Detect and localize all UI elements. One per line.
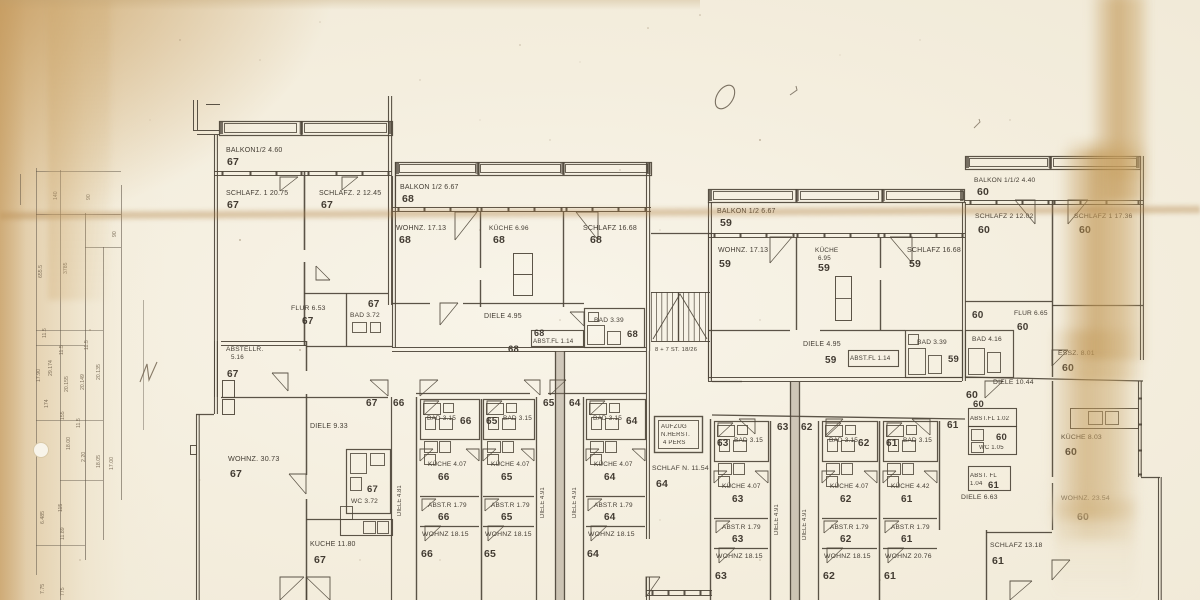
svg-text:59: 59 [948, 354, 959, 365]
svg-text:ABST.R 1.79: ABST.R 1.79 [722, 524, 761, 531]
svg-text:63: 63 [715, 570, 727, 582]
svg-text:68: 68 [590, 234, 602, 246]
svg-text:61: 61 [901, 494, 913, 505]
svg-text:20.149: 20.149 [80, 374, 86, 390]
svg-text:655.5: 655.5 [38, 265, 44, 278]
svg-text:775: 775 [60, 587, 66, 596]
svg-text:ABST. FL: ABST. FL [970, 473, 997, 479]
svg-text:62: 62 [823, 570, 835, 582]
svg-text:WC 1.05: WC 1.05 [979, 445, 1004, 451]
svg-text:N.HERST.: N.HERST. [661, 432, 690, 438]
svg-text:59: 59 [825, 355, 837, 366]
svg-text:63: 63 [777, 422, 789, 433]
svg-text:68: 68 [534, 328, 544, 338]
svg-text:60: 60 [978, 224, 990, 236]
svg-text:17.90: 17.90 [36, 369, 42, 382]
svg-text:68: 68 [508, 344, 519, 355]
svg-text:DIELE 4.81: DIELE 4.81 [397, 485, 403, 516]
svg-text:DIELE 4.91: DIELE 4.91 [572, 487, 578, 518]
svg-text:BALKON1/2 4.60: BALKON1/2 4.60 [226, 147, 283, 154]
svg-text:67: 67 [227, 199, 239, 211]
svg-text:18.00: 18.00 [66, 437, 72, 450]
svg-text:BAD 3.15: BAD 3.15 [903, 437, 932, 444]
svg-text:ABST.FL 1.14: ABST.FL 1.14 [533, 338, 574, 345]
svg-text:BALKON 1/2 6.67: BALKON 1/2 6.67 [400, 184, 459, 191]
svg-text:WOHNZ. 23.54: WOHNZ. 23.54 [1061, 495, 1110, 502]
svg-text:59: 59 [909, 258, 921, 270]
svg-text:ABST.R 1.79: ABST.R 1.79 [891, 524, 930, 531]
svg-text:7.75: 7.75 [40, 584, 46, 594]
svg-text:68: 68 [493, 234, 505, 246]
svg-text:66: 66 [421, 548, 433, 560]
svg-text:KÜCHE 4.07: KÜCHE 4.07 [428, 460, 467, 468]
svg-text:62: 62 [801, 422, 813, 433]
svg-text:60: 60 [1017, 322, 1029, 333]
svg-text:11.5: 11.5 [59, 345, 65, 355]
svg-text:67: 67 [321, 199, 333, 211]
svg-text:60: 60 [996, 432, 1007, 443]
svg-text:BAD 3.15: BAD 3.15 [734, 437, 763, 444]
svg-text:65: 65 [543, 398, 555, 409]
svg-text:61: 61 [884, 570, 896, 582]
svg-text:KÜCHE 11.80: KÜCHE 11.80 [310, 540, 356, 548]
svg-text:60: 60 [1077, 511, 1089, 523]
svg-text:BALKON 1/2 6.67: BALKON 1/2 6.67 [717, 208, 776, 215]
svg-text:ABST.FL 1.14: ABST.FL 1.14 [850, 355, 891, 362]
svg-text:174: 174 [44, 399, 50, 408]
svg-text:20.135: 20.135 [96, 364, 102, 380]
svg-text:BAD 3.15: BAD 3.15 [829, 437, 858, 444]
svg-text:KÜCHE 4.07: KÜCHE 4.07 [830, 482, 869, 490]
svg-text:ABST.R 1.79: ABST.R 1.79 [830, 524, 869, 531]
svg-text:67: 67 [314, 554, 326, 566]
svg-text:62: 62 [840, 494, 852, 505]
svg-text:BAD 3.15: BAD 3.15 [503, 415, 532, 422]
svg-text:90: 90 [86, 194, 92, 200]
svg-text:DIELE 4.95: DIELE 4.95 [484, 313, 522, 320]
svg-text:SCHLAFZ. 1 20.75: SCHLAFZ. 1 20.75 [226, 190, 288, 197]
svg-text:6.485: 6.485 [40, 511, 46, 524]
svg-text:SCHLAFZ 1 17.36: SCHLAFZ 1 17.36 [1074, 213, 1133, 220]
svg-text:140: 140 [53, 191, 59, 200]
svg-text:BAD 3.15: BAD 3.15 [427, 415, 456, 422]
svg-text:68: 68 [399, 234, 411, 246]
svg-text:20.155: 20.155 [64, 376, 70, 392]
svg-text:KÜCHE 4.07: KÜCHE 4.07 [722, 482, 761, 490]
svg-text:DIELE 4.91: DIELE 4.91 [802, 509, 808, 540]
svg-text:17.00: 17.00 [109, 457, 115, 470]
svg-text:63: 63 [732, 494, 744, 505]
svg-text:FLUR 6.53: FLUR 6.53 [291, 305, 326, 312]
svg-text:KÜCHE 4.07: KÜCHE 4.07 [594, 460, 633, 468]
svg-text:64: 64 [604, 512, 616, 523]
svg-text:67: 67 [367, 484, 378, 495]
svg-text:59: 59 [720, 217, 732, 229]
svg-text:64: 64 [626, 416, 638, 427]
svg-text:68: 68 [402, 193, 414, 205]
svg-text:WC 3.72: WC 3.72 [351, 498, 378, 505]
svg-text:63: 63 [732, 534, 744, 545]
svg-text:65: 65 [501, 512, 513, 523]
svg-text:SCHLAFZ 16.68: SCHLAFZ 16.68 [907, 247, 961, 254]
svg-text:59: 59 [818, 262, 830, 274]
svg-text:60: 60 [972, 310, 984, 321]
svg-text:60: 60 [973, 399, 984, 410]
svg-text:ABST.FL 1.02: ABST.FL 1.02 [970, 416, 1010, 422]
svg-text:5.16: 5.16 [231, 354, 244, 361]
svg-text:67: 67 [368, 299, 380, 310]
svg-text:ESSZ. 8.01: ESSZ. 8.01 [1058, 350, 1095, 357]
svg-text:63: 63 [717, 438, 729, 449]
svg-text:3785: 3785 [63, 262, 69, 274]
svg-text:WOHNZ. 17.13: WOHNZ. 17.13 [718, 247, 768, 254]
svg-text:60: 60 [977, 186, 989, 198]
svg-text:66: 66 [393, 398, 405, 409]
svg-text:60: 60 [1079, 224, 1091, 236]
svg-text:KÜCHE: KÜCHE [815, 246, 838, 254]
svg-text:6.95: 6.95 [818, 255, 831, 262]
svg-text:AUFZUG: AUFZUG [661, 424, 687, 430]
svg-text:67: 67 [227, 369, 239, 380]
svg-text:ABST.R 1.79: ABST.R 1.79 [428, 502, 467, 509]
svg-text:115: 115 [58, 504, 64, 512]
svg-text:FLUR 6.65: FLUR 6.65 [1014, 310, 1048, 317]
svg-text:1.04: 1.04 [970, 481, 983, 487]
svg-text:64: 64 [569, 398, 581, 409]
svg-text:61: 61 [901, 534, 913, 545]
svg-text:KÜCHE 4.42: KÜCHE 4.42 [891, 482, 930, 490]
svg-text:62: 62 [858, 438, 870, 449]
svg-text:SCHLAFZ. 2 12.45: SCHLAFZ. 2 12.45 [319, 190, 381, 197]
svg-text:SCHLAF N. 11.54: SCHLAF N. 11.54 [652, 465, 709, 472]
svg-text:8 + 7 ST. 18/26: 8 + 7 ST. 18/26 [655, 347, 697, 353]
svg-text:66: 66 [438, 512, 450, 523]
svg-text:61: 61 [947, 420, 959, 431]
svg-text:61: 61 [886, 438, 898, 449]
svg-text:65: 65 [501, 472, 513, 483]
svg-text:90: 90 [112, 231, 118, 237]
svg-text:66: 66 [460, 416, 472, 427]
svg-text:65: 65 [486, 416, 498, 427]
svg-text:WOHNZ. 30.73: WOHNZ. 30.73 [228, 454, 280, 463]
svg-text:DIELE 4.91: DIELE 4.91 [540, 487, 546, 518]
svg-text:BAD 4.16: BAD 4.16 [972, 336, 1002, 343]
svg-text:KÜCHE 4.07: KÜCHE 4.07 [491, 460, 530, 468]
svg-text:4 PERS: 4 PERS [663, 440, 686, 446]
svg-text:155: 155 [60, 411, 66, 420]
svg-text:61: 61 [988, 480, 999, 491]
svg-text:59: 59 [719, 258, 731, 270]
svg-text:18.05: 18.05 [96, 455, 102, 468]
svg-text:65: 65 [484, 548, 496, 560]
svg-text:ABST.R 1.79: ABST.R 1.79 [594, 502, 633, 509]
svg-text:DIELE 6.63: DIELE 6.63 [961, 494, 998, 501]
svg-text:ABST.R 1.79: ABST.R 1.79 [491, 502, 530, 509]
svg-text:BALKON 1/1/2 4.40: BALKON 1/1/2 4.40 [974, 177, 1035, 184]
svg-text:11.89: 11.89 [60, 527, 66, 540]
svg-text:DIELE 4.95: DIELE 4.95 [803, 341, 841, 348]
svg-text:BAD 3.15: BAD 3.15 [593, 415, 622, 422]
svg-text:SCHLAFZ 13.18: SCHLAFZ 13.18 [990, 542, 1042, 549]
svg-text:11.5: 11.5 [42, 328, 48, 338]
svg-text:61: 61 [992, 555, 1004, 567]
svg-text:DIELE 9.33: DIELE 9.33 [310, 423, 348, 430]
svg-text:BAD 3.72: BAD 3.72 [350, 312, 380, 319]
svg-text:ABSTELLR.: ABSTELLR. [226, 346, 263, 353]
svg-text:DIELE 4.91: DIELE 4.91 [774, 504, 780, 535]
svg-text:62: 62 [840, 534, 852, 545]
svg-text:64: 64 [656, 478, 668, 490]
svg-text:29.174: 29.174 [48, 360, 54, 376]
svg-text:2.20: 2.20 [81, 452, 87, 462]
svg-text:60: 60 [1065, 446, 1077, 458]
svg-text:11.5: 11.5 [84, 340, 90, 350]
svg-text:67: 67 [302, 316, 314, 327]
svg-text:WOHNZ. 17.13: WOHNZ. 17.13 [396, 225, 446, 232]
svg-text:67: 67 [230, 468, 242, 480]
svg-text:SCHLAFZ 2 12.02: SCHLAFZ 2 12.02 [975, 213, 1034, 220]
svg-text:68: 68 [627, 329, 638, 340]
svg-text:66: 66 [438, 472, 450, 483]
svg-text:11.5: 11.5 [76, 418, 82, 428]
svg-text:64: 64 [604, 472, 616, 483]
svg-text:KÜCHE 8.03: KÜCHE 8.03 [1061, 433, 1102, 441]
svg-text:BAD 3.39: BAD 3.39 [917, 339, 947, 346]
svg-text:60: 60 [1062, 362, 1074, 374]
svg-text:KÜCHE 6.96: KÜCHE 6.96 [489, 224, 529, 232]
svg-text:67: 67 [227, 156, 239, 168]
svg-text:64: 64 [587, 548, 599, 560]
svg-text:67: 67 [366, 398, 378, 409]
